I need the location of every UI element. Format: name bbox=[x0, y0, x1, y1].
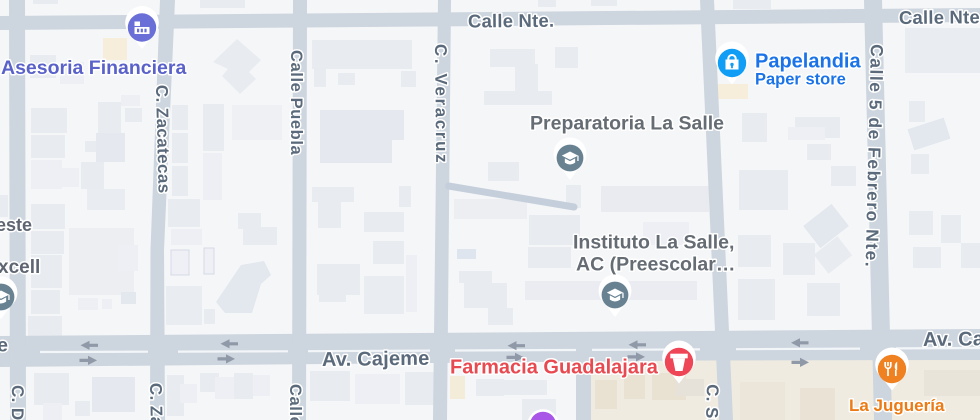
svg-text:Farmacia Guadalajara: Farmacia Guadalajara bbox=[450, 357, 659, 379]
svg-text:C. Zacatecas: C. Zacatecas bbox=[146, 383, 168, 420]
svg-text:xcell: xcell bbox=[0, 257, 40, 278]
svg-text:Instituto La Salle,: Instituto La Salle, bbox=[573, 232, 734, 254]
svg-text:Calle Nte.: Calle Nte. bbox=[899, 6, 980, 28]
svg-text:C. Veracruz: C. Veracruz bbox=[431, 44, 451, 165]
svg-text:Calle Puebla: Calle Puebla bbox=[286, 384, 304, 420]
svg-text:La Juguería: La Juguería bbox=[849, 396, 945, 415]
svg-text:este: este bbox=[0, 215, 32, 235]
svg-text:C. Zacatecas: C. Zacatecas bbox=[152, 85, 174, 194]
svg-text:Asesoria Financiera: Asesoria Financiera bbox=[1, 57, 186, 79]
svg-text:C. Durango: C. Durango bbox=[8, 385, 27, 420]
svg-text:Calle Puebla: Calle Puebla bbox=[287, 50, 305, 156]
svg-text:Av. Cajeme: Av. Cajeme bbox=[923, 328, 980, 351]
svg-text:AC (Preescolar…: AC (Preescolar… bbox=[576, 254, 735, 276]
svg-text:Papelandia: Papelandia bbox=[755, 51, 861, 73]
svg-text:Paper store: Paper store bbox=[755, 71, 846, 89]
svg-text:Av. Cajeme: Av. Cajeme bbox=[322, 348, 430, 371]
svg-text:me: me bbox=[0, 335, 8, 357]
svg-text:C. Sufragio: C. Sufragio bbox=[701, 384, 722, 420]
svg-text:Preparatoria La Salle: Preparatoria La Salle bbox=[530, 113, 724, 135]
svg-text:Calle Nte.: Calle Nte. bbox=[468, 10, 554, 32]
